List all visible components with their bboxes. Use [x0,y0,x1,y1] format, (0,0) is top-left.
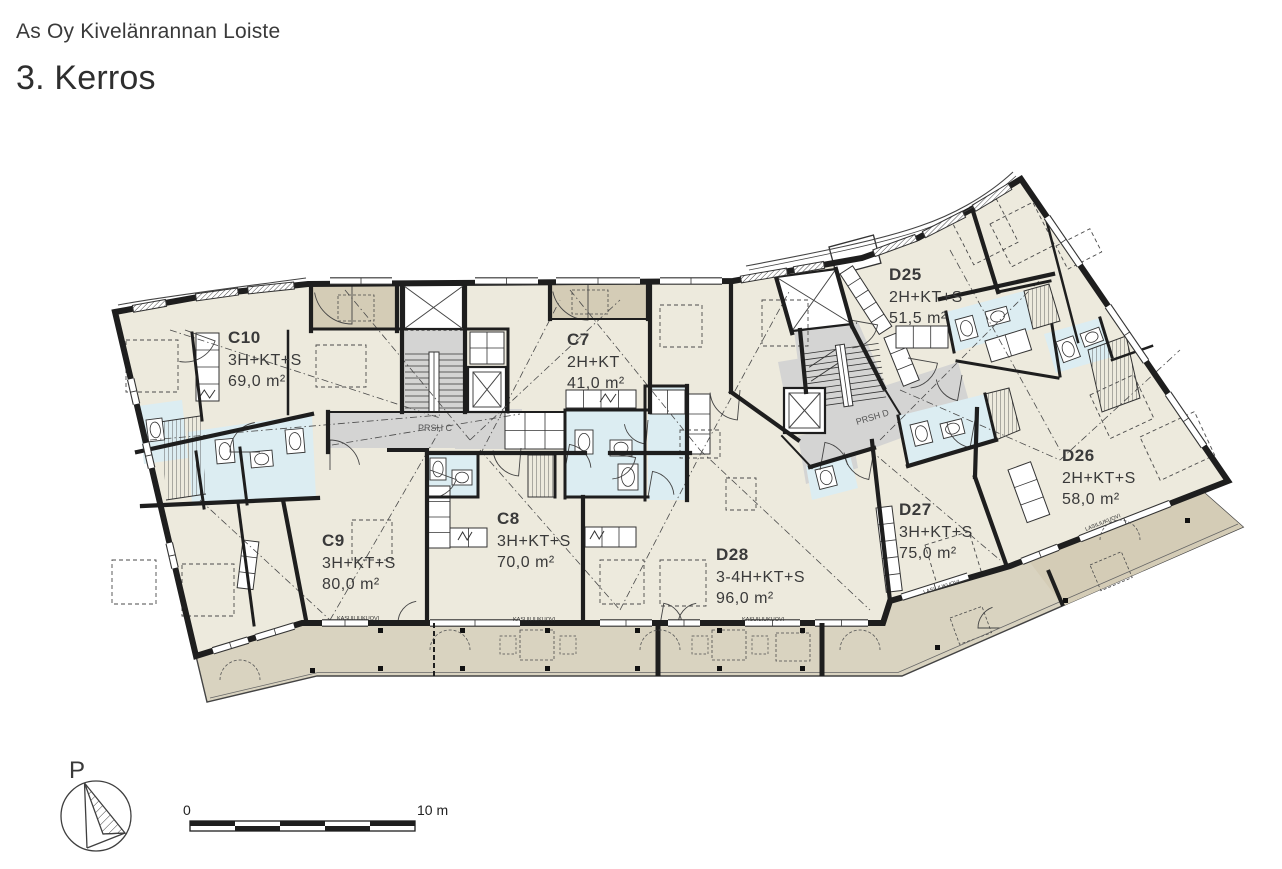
svg-text:0: 0 [183,802,191,818]
svg-text:3H+KT+S: 3H+KT+S [899,524,973,541]
svg-text:2H+KT+S: 2H+KT+S [889,289,963,306]
svg-text:D28: D28 [716,545,749,564]
svg-text:As Oy Kivelänrannan Loiste: As Oy Kivelänrannan Loiste [16,20,280,43]
svg-text:3H+KT+S: 3H+KT+S [497,533,571,550]
svg-text:KASUILIUKUOVI: KASUILIUKUOVI [742,617,785,623]
svg-text:2H+KT: 2H+KT [567,354,620,371]
svg-text:KASUILIUKUOVI: KASUILIUKUOVI [337,616,380,622]
svg-text:3H+KT+S: 3H+KT+S [228,352,302,369]
svg-text:96,0 m²: 96,0 m² [716,590,774,607]
svg-text:51,5 m²: 51,5 m² [889,310,947,327]
svg-text:C7: C7 [567,330,590,349]
svg-text:41,0 m²: 41,0 m² [567,375,625,392]
svg-text:D26: D26 [1062,446,1095,465]
svg-text:PRSH C: PRSH C [418,423,453,433]
svg-text:69,0 m²: 69,0 m² [228,373,286,390]
svg-text:80,0 m²: 80,0 m² [322,576,380,593]
svg-text:75,0 m²: 75,0 m² [899,545,957,562]
svg-text:C10: C10 [228,328,261,347]
svg-text:C9: C9 [322,531,345,550]
svg-text:70,0 m²: 70,0 m² [497,554,555,571]
svg-text:D27: D27 [899,500,932,519]
svg-text:3-4H+KT+S: 3-4H+KT+S [716,569,805,586]
svg-text:3. Kerros: 3. Kerros [16,59,156,97]
svg-text:P: P [69,757,85,784]
svg-text:C8: C8 [497,509,520,528]
svg-text:2H+KT+S: 2H+KT+S [1062,470,1136,487]
svg-text:58,0 m²: 58,0 m² [1062,491,1120,508]
svg-text:D25: D25 [889,265,922,284]
svg-text:KASUILIUKUOVI: KASUILIUKUOVI [513,617,556,623]
svg-text:3H+KT+S: 3H+KT+S [322,555,396,572]
svg-text:10 m: 10 m [417,802,448,818]
